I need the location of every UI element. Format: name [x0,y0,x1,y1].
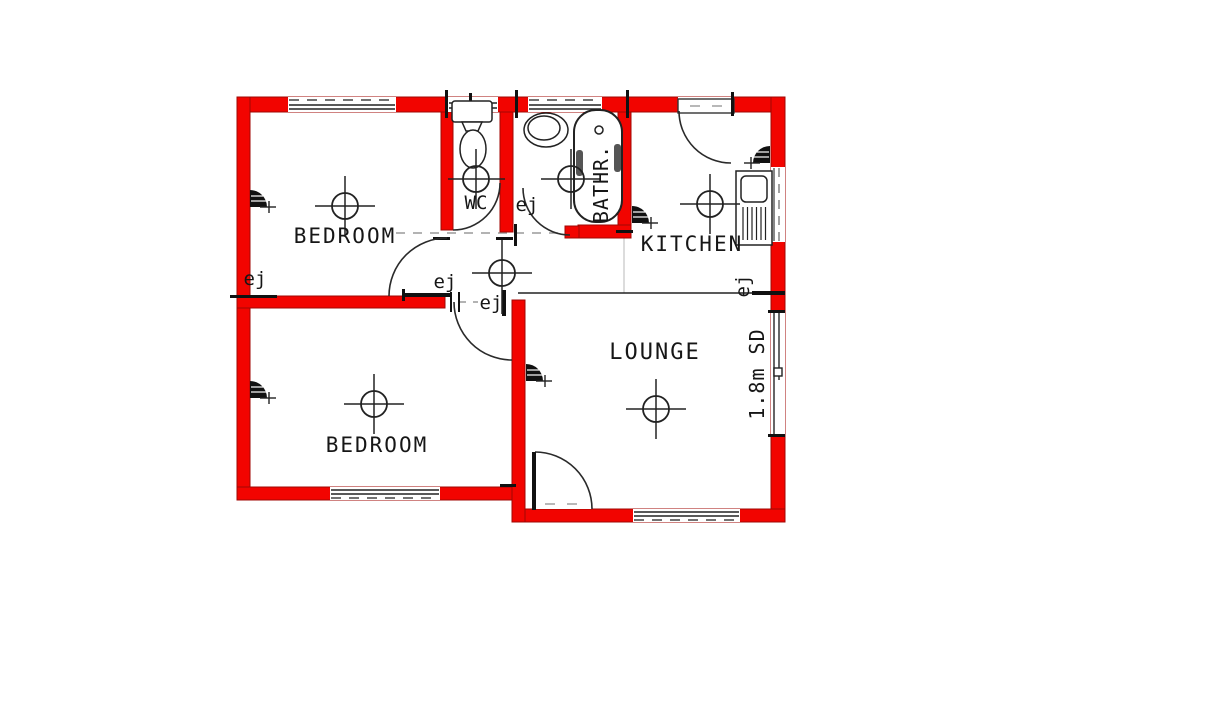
label-wc: WC [465,192,488,214]
walls [237,97,785,522]
hall-ceiling-dashed-line [396,233,624,302]
toilet [452,101,492,168]
switch-lounge [526,364,552,387]
ej-label-left-wall: ej [244,268,267,290]
ej-label-bedroom-top-door: ej [434,271,457,293]
ej-label-bathroom-door: ej [516,194,539,216]
door-kitchen-entrance [678,97,734,163]
wall-lounge-left [512,300,525,522]
sliding-door-label: 1.8m SD [745,328,769,419]
label-kitchen: KITCHEN [641,232,744,256]
switch-kitchen-left [632,206,658,229]
label-bedroom-top: BEDROOM [294,224,397,248]
doors [389,183,592,510]
wall-right [771,97,785,522]
switch-bedroom-top [250,190,276,213]
switch-kitchen-right [744,146,770,169]
label-bathroom: BATHR. [589,145,613,223]
ceiling-lights [315,149,740,439]
ej-label-kitchen-lounge: ej [732,275,754,298]
floor-plan-page: BEDROOM BEDROOM WC KITCHEN LOUNGE BATHR.… [0,0,1209,714]
switch-bedroom-bottom [250,381,276,404]
ceiling-light-lounge [626,379,686,439]
window-lounge-bottom [633,509,740,522]
window-bedroom-bottom [330,487,440,500]
ej-label-bedroom-bottom-door: ej [480,292,503,314]
washbasin [524,113,568,147]
label-bedroom-bottom: BEDROOM [326,433,429,457]
wall-wc-right [500,112,513,232]
floor-plan-drawing: BEDROOM BEDROOM WC KITCHEN LOUNGE BATHR.… [0,0,1209,714]
label-lounge: LOUNGE [609,340,700,365]
window-bedroom-top [288,97,396,112]
ceiling-light-bedroom-bottom [344,374,404,434]
wall-bathroom-door-jamb [565,226,579,238]
ceiling-light-kitchen [680,174,740,234]
window-kitchen-right [771,167,785,242]
wall-bedroom-right [441,112,453,230]
door-lounge-entrance [532,452,592,510]
